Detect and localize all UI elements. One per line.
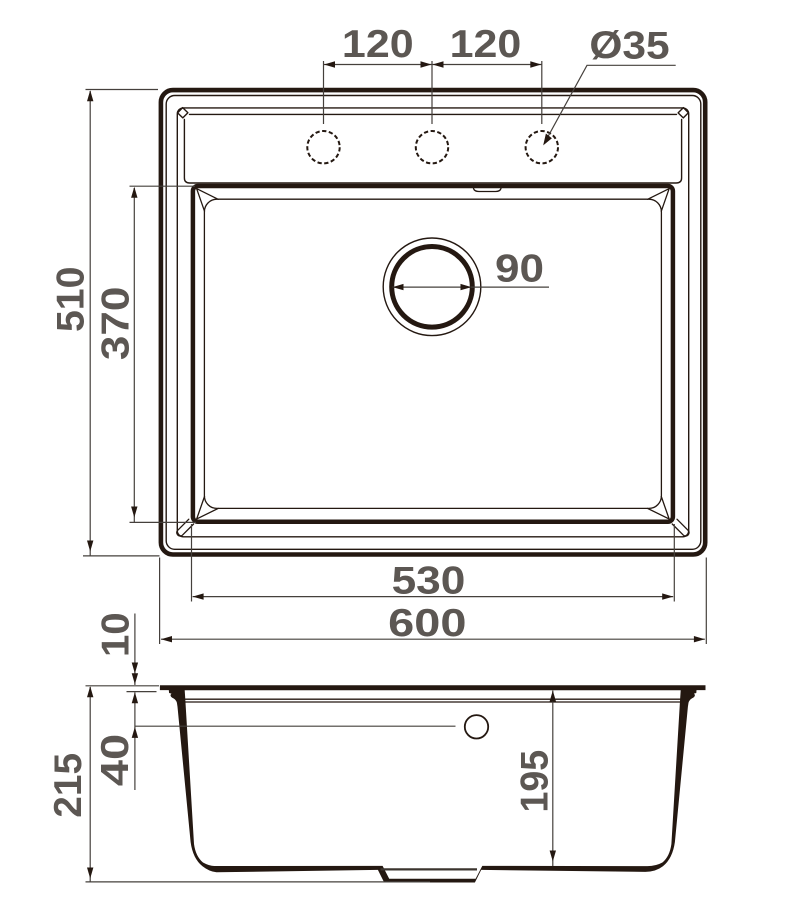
svg-text:530: 530 <box>392 559 466 602</box>
svg-text:Ø35: Ø35 <box>589 24 669 67</box>
svg-text:510: 510 <box>50 267 93 332</box>
svg-text:120: 120 <box>450 23 522 66</box>
svg-text:600: 600 <box>388 602 466 645</box>
svg-text:195: 195 <box>514 750 557 813</box>
svg-text:40: 40 <box>94 734 137 787</box>
svg-text:215: 215 <box>47 753 90 818</box>
svg-text:90: 90 <box>495 248 544 291</box>
svg-text:120: 120 <box>342 23 414 66</box>
svg-text:370: 370 <box>95 287 138 361</box>
svg-text:10: 10 <box>95 612 138 657</box>
